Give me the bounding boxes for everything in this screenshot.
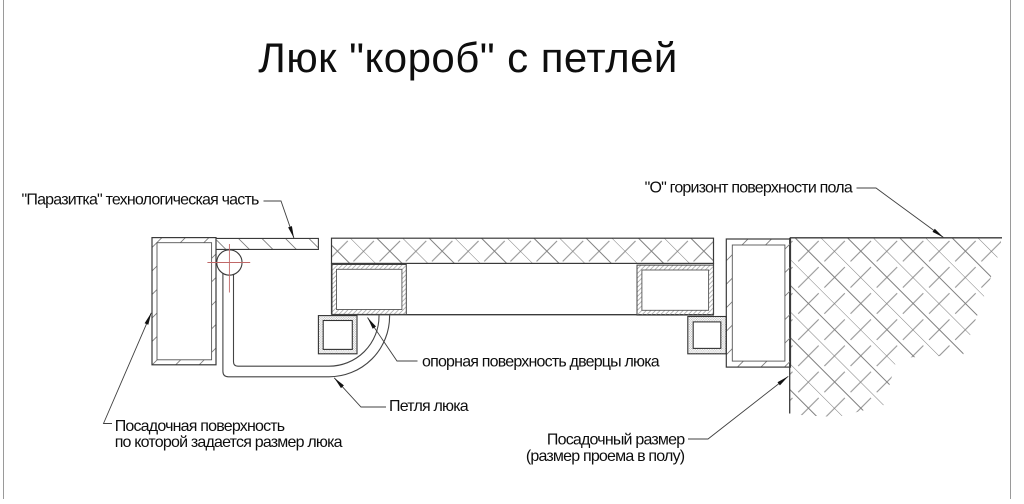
svg-text:"Паразитка" технологическая ча: "Паразитка" технологическая часть <box>22 192 259 209</box>
svg-text:"О" горизонт поверхности пола: "О" горизонт поверхности пола <box>645 179 853 196</box>
svg-text:Люк "короб" с петлей: Люк "короб" с петлей <box>258 34 678 81</box>
svg-text:опорная поверхность дверцы люк: опорная поверхность дверцы люка <box>422 354 660 371</box>
svg-text:Посадочный размер: Посадочный размер <box>547 432 685 449</box>
svg-text:Посадочная поверхность: Посадочная поверхность <box>115 418 285 435</box>
svg-text:по которой задается размер люк: по которой задается размер люка <box>115 434 343 451</box>
svg-text:(размер проема в полу): (размер проема в полу) <box>526 448 685 465</box>
svg-text:Петля люка: Петля люка <box>389 398 469 415</box>
